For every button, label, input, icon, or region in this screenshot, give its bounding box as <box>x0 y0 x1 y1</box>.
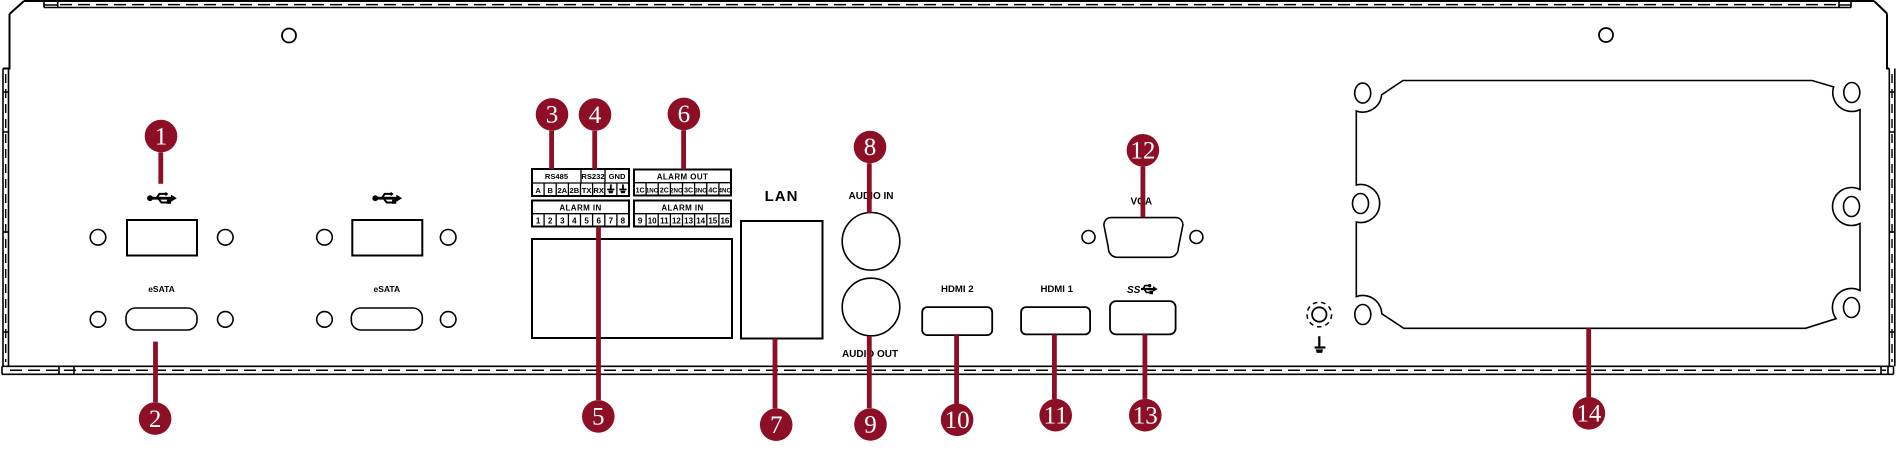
svg-text:RS232: RS232 <box>581 172 604 181</box>
svg-text:3C: 3C <box>684 187 693 194</box>
svg-text:5: 5 <box>592 404 605 431</box>
svg-text:9: 9 <box>638 217 643 226</box>
svg-text:3NO: 3NO <box>694 187 707 194</box>
svg-text:4: 4 <box>589 102 602 129</box>
svg-text:14: 14 <box>1576 401 1602 428</box>
svg-text:SS: SS <box>1127 285 1141 296</box>
svg-text:1: 1 <box>155 123 168 150</box>
svg-text:2B: 2B <box>570 186 580 195</box>
svg-text:3: 3 <box>560 217 565 226</box>
svg-text:2A: 2A <box>557 186 567 195</box>
svg-text:8: 8 <box>864 134 877 161</box>
svg-text:4C: 4C <box>708 187 717 194</box>
svg-text:ALARM IN: ALARM IN <box>559 203 601 212</box>
svg-text:10: 10 <box>648 217 657 226</box>
svg-text:9: 9 <box>864 412 877 439</box>
svg-text:A: A <box>535 186 541 195</box>
svg-text:14: 14 <box>696 217 705 226</box>
svg-text:2C: 2C <box>660 187 669 194</box>
svg-text:LAN: LAN <box>765 188 799 205</box>
svg-text:eSATA: eSATA <box>373 284 400 294</box>
svg-text:1C: 1C <box>636 187 645 194</box>
svg-text:1: 1 <box>536 217 541 226</box>
svg-text:11: 11 <box>1044 402 1068 429</box>
svg-text:11: 11 <box>660 217 669 226</box>
svg-text:RS485: RS485 <box>545 172 569 181</box>
svg-text:2NO: 2NO <box>670 187 683 194</box>
svg-text:8: 8 <box>621 217 626 226</box>
svg-text:7: 7 <box>770 412 783 439</box>
svg-text:16: 16 <box>720 217 729 226</box>
svg-text:HDMI 1: HDMI 1 <box>1040 284 1073 295</box>
svg-text:2: 2 <box>149 406 162 433</box>
svg-text:7: 7 <box>609 217 614 226</box>
svg-text:1NO: 1NO <box>646 187 659 194</box>
svg-text:RX: RX <box>593 186 604 195</box>
svg-text:3: 3 <box>546 102 559 129</box>
svg-text:ALARM IN: ALARM IN <box>661 203 703 212</box>
svg-text:eSATA: eSATA <box>148 284 175 294</box>
svg-text:HDMI 2: HDMI 2 <box>941 284 974 295</box>
svg-text:15: 15 <box>708 217 717 226</box>
svg-text:5: 5 <box>584 217 589 226</box>
svg-text:B: B <box>547 186 553 195</box>
svg-text:13: 13 <box>684 217 693 226</box>
svg-text:GND: GND <box>609 172 626 181</box>
svg-text:TX: TX <box>582 186 592 195</box>
svg-text:6: 6 <box>678 101 691 128</box>
svg-text:ALARM OUT: ALARM OUT <box>657 172 709 181</box>
svg-text:4: 4 <box>572 217 577 226</box>
svg-text:12: 12 <box>672 217 681 226</box>
svg-text:6: 6 <box>596 217 601 226</box>
svg-text:10: 10 <box>945 407 970 434</box>
svg-text:4NO: 4NO <box>719 187 732 194</box>
svg-text:12: 12 <box>1130 138 1155 165</box>
svg-text:13: 13 <box>1133 402 1158 429</box>
svg-text:2: 2 <box>548 217 553 226</box>
